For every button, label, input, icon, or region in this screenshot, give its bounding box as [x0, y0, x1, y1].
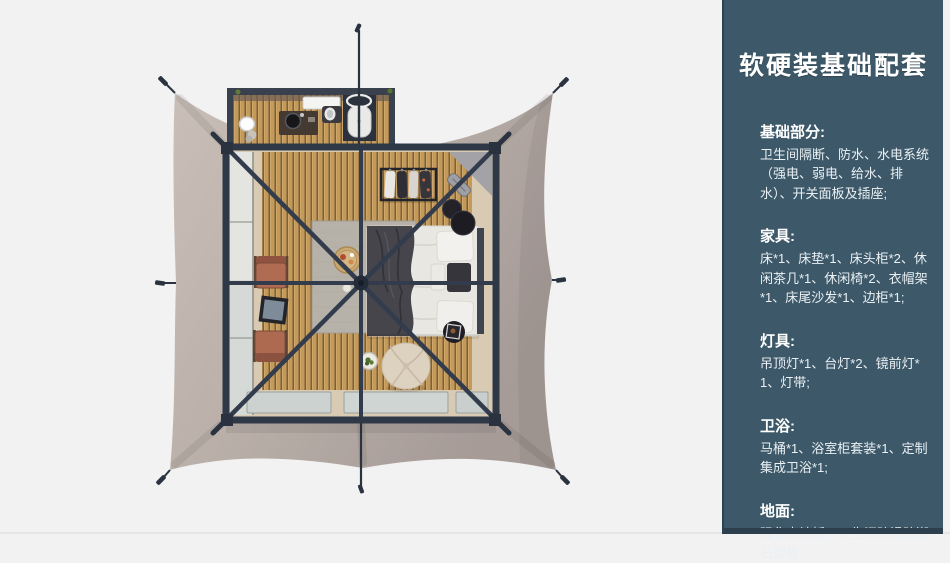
round-side-table: [443, 321, 465, 343]
stake-icon: [560, 475, 570, 485]
pillow: [436, 230, 473, 261]
sidebar-bottom-strip: [724, 528, 943, 534]
toilet: [322, 106, 342, 123]
side-table: [361, 353, 378, 370]
section-body: 马桶*1、浴室柜套装*1、定制集成卫浴*1;: [760, 439, 929, 478]
section-basics: 基础部分: 卫生间隔断、防水、水电系统（强电、弱电、给水、排水）、开关面板及插座…: [760, 121, 929, 204]
stake-icon: [358, 485, 364, 494]
stake-icon: [155, 281, 164, 286]
bathroom-vanity: [279, 111, 318, 135]
section-body: 床*1、床垫*1、床头柜*2、休闲茶几*1、休闲椅*2、衣帽架*1、床尾沙发*1…: [760, 249, 929, 308]
spec-sidebar: 软硬装基础配套 基础部分: 卫生间隔断、防水、水电系统（强电、弱电、给水、排水）…: [722, 0, 943, 534]
clothes-rack: [381, 169, 438, 203]
bedside-stool: [451, 211, 475, 235]
section-bathroom: 卫浴: 马桶*1、浴室柜套装*1、定制集成卫浴*1;: [760, 415, 929, 478]
plant-icon: [236, 90, 241, 95]
plant-icon: [388, 89, 393, 94]
section-lighting: 灯具: 吊顶灯*1、台灯*2、镜前灯*1、灯带;: [760, 330, 929, 393]
stake-icon: [556, 278, 565, 283]
section-heading: 家具:: [760, 225, 929, 246]
stake-icon: [156, 475, 166, 485]
dark-pillow: [447, 263, 471, 292]
section-body: 吊顶灯*1、台灯*2、镜前灯*1、灯带;: [760, 354, 929, 393]
spec-sections: 基础部分: 卫生间隔断、防水、水电系统（强电、弱电、给水、排水）、开关面板及插座…: [724, 99, 943, 563]
section-heading: 灯具:: [760, 330, 929, 351]
stake-icon: [559, 77, 569, 87]
section-heading: 地面:: [760, 500, 929, 521]
tent-frame: [213, 134, 509, 433]
page-title: 软硬装基础配套: [724, 46, 943, 82]
section-heading: 卫浴:: [760, 415, 929, 436]
pillow: [431, 264, 445, 290]
stake-icon: [355, 24, 361, 33]
section-furniture: 家具: 床*1、床垫*1、床头柜*2、休闲茶几*1、休闲椅*2、衣帽架*1、床尾…: [760, 225, 929, 308]
tent-floorplan-render: [0, 0, 722, 534]
bathroom: [227, 88, 395, 150]
stake-icon: [158, 76, 168, 86]
coffee-table: [259, 296, 289, 325]
section-body: 卫生间隔断、防水、水电系统（强电、弱电、给水、排水）、开关面板及插座;: [760, 145, 929, 204]
lounge-chair: [253, 330, 287, 362]
section-heading: 基础部分:: [760, 121, 929, 142]
